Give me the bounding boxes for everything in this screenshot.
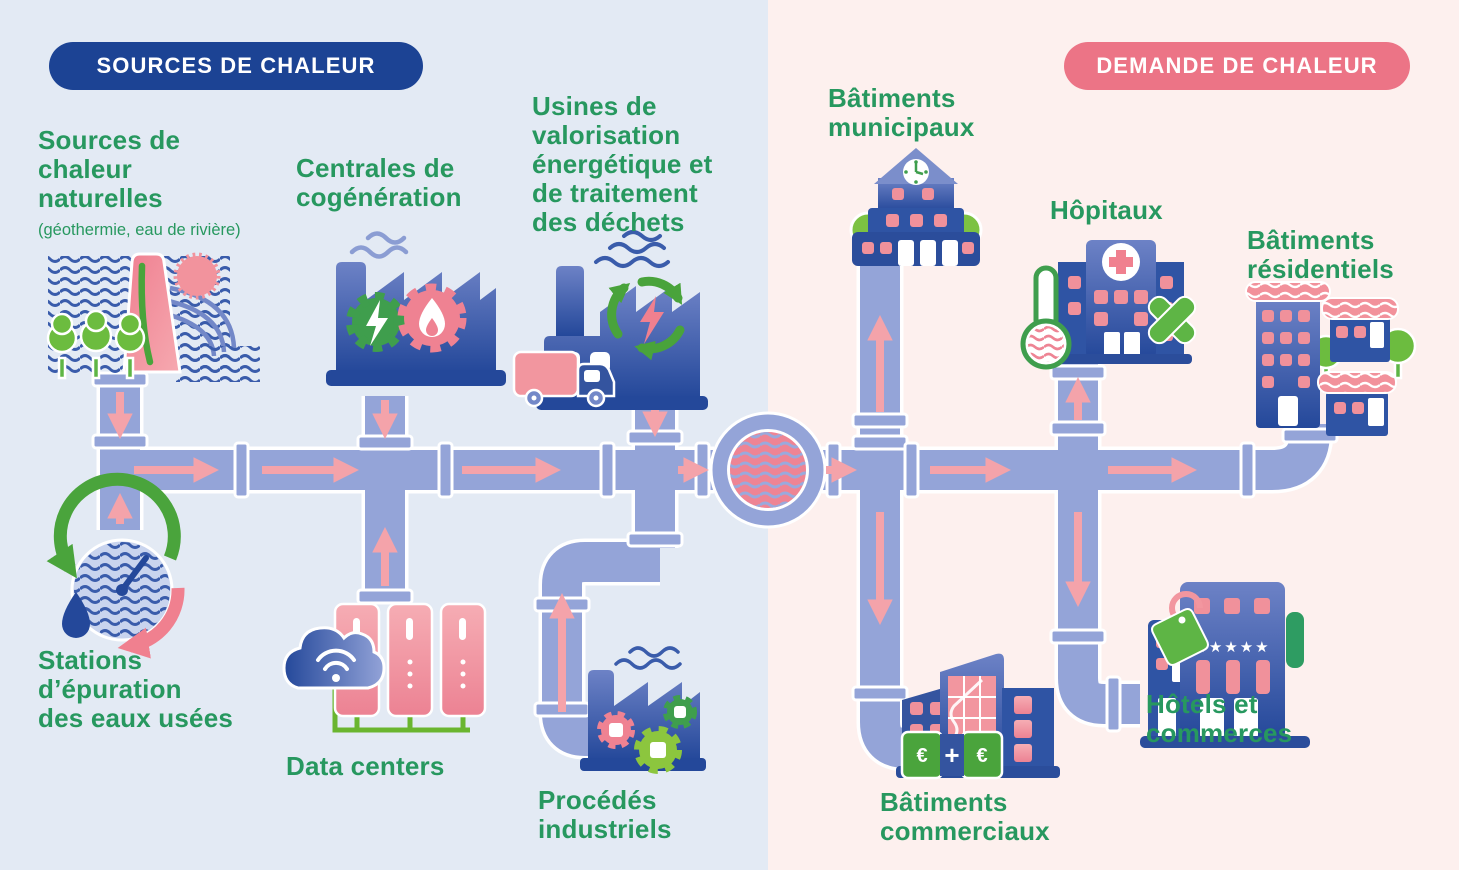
- house-upper: [1322, 298, 1398, 362]
- cloud-wifi-icon: [284, 628, 384, 688]
- label-wastewater-treatment: Stations d’épuration des eaux usées: [38, 646, 233, 733]
- sources-header-badge: SOURCES DE CHALEUR: [49, 42, 423, 90]
- label-municipal-buildings: Bâtiments municipaux: [828, 84, 974, 142]
- euro-symbol: €: [916, 745, 927, 767]
- cogeneration-plant-icon: [326, 234, 506, 387]
- label-hotels-shops: Hôtels et commerces: [1146, 690, 1292, 748]
- sublabel-natural-heat-sources: (géothermie, eau de rivière): [38, 221, 241, 240]
- natural-heat-sources-icon: [48, 254, 260, 382]
- heat-exchanger-hub: [711, 413, 825, 527]
- euro-symbol: €: [976, 745, 987, 767]
- label-data-centers: Data centers: [286, 752, 444, 781]
- label-commercial-buildings: Bâtiments commerciaux: [880, 788, 1050, 846]
- glass-facade: [948, 676, 996, 740]
- label-cogeneration-plants: Centrales de cogénération: [296, 154, 462, 212]
- municipal-buildings-icon: [851, 148, 981, 266]
- electricity-gear-icon: [352, 298, 400, 346]
- label-waste-to-energy-plants: Usines de valorisation énergétique et de…: [532, 92, 713, 238]
- label-industrial-processes: Procédés industriels: [538, 786, 672, 844]
- district-heating-infographic: € € + ★★★★★: [0, 0, 1459, 870]
- trees: [48, 311, 144, 378]
- hospitals-icon: [1023, 240, 1199, 367]
- heat-gear-icon: [404, 290, 460, 346]
- industrial-processes-icon: [580, 648, 706, 771]
- label-hospitals: Hôpitaux: [1050, 196, 1163, 225]
- label-residential-buildings: Bâtiments résidentiels: [1247, 226, 1394, 284]
- demand-header-badge: DEMANDE DE CHALEUR: [1064, 42, 1410, 90]
- house-lower: [1318, 372, 1396, 436]
- data-center-icon: [284, 604, 485, 730]
- waste-to-energy-plant-icon: [514, 232, 708, 410]
- sun-icon: [177, 256, 217, 296]
- label-natural-heat-sources: Sources de chaleur naturelles: [38, 126, 180, 213]
- residential-buildings-icon: [1246, 282, 1415, 436]
- money-icon: € € +: [902, 732, 1002, 778]
- shop-sign: [1286, 612, 1304, 668]
- plus-symbol: +: [944, 740, 959, 770]
- commercial-buildings-icon: € € +: [896, 654, 1060, 778]
